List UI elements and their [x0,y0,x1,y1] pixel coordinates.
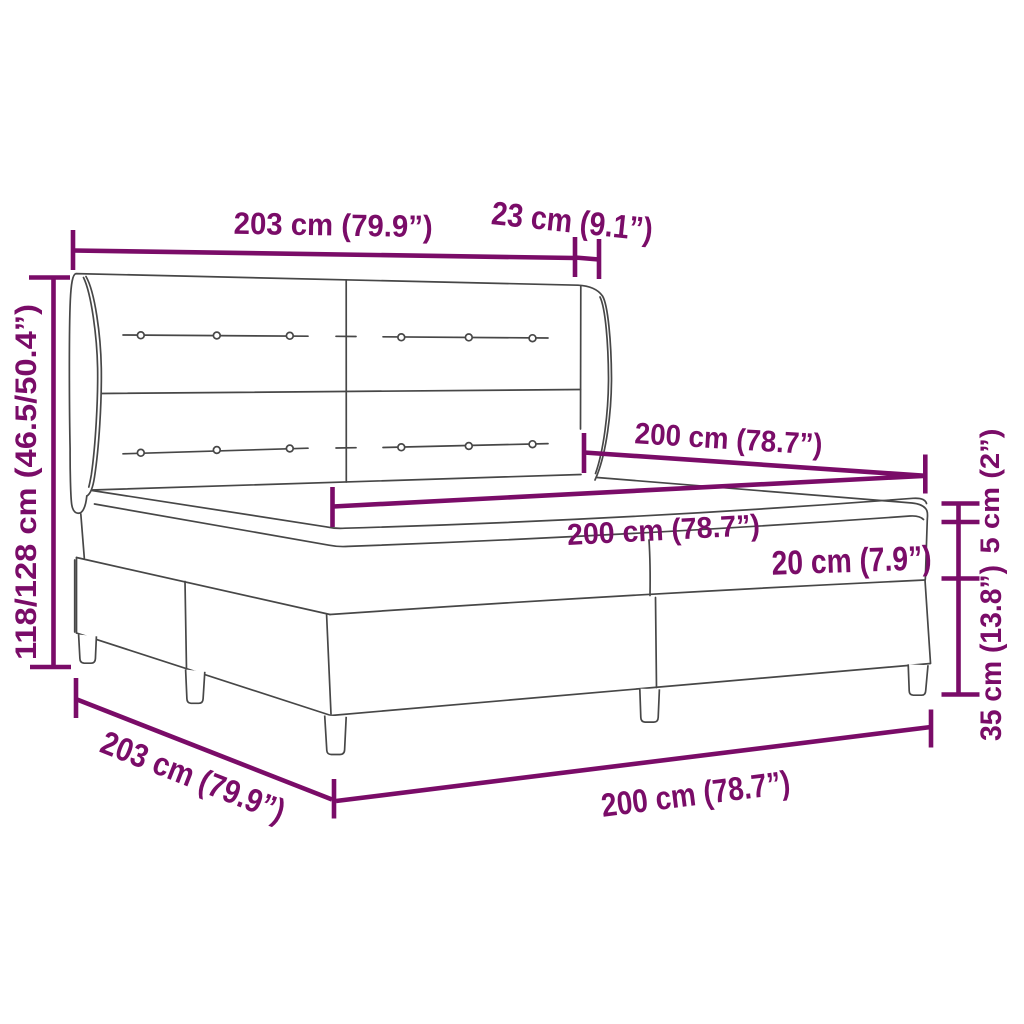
svg-text:200 cm (78.7”): 200 cm (78.7”) [634,417,824,461]
svg-text:35 cm (13.8”): 35 cm (13.8”) [975,565,1008,741]
svg-text:203 cm (79.9”): 203 cm (79.9”) [96,723,291,829]
svg-text:200 cm (78.7”): 200 cm (78.7”) [599,763,792,824]
svg-text:20 cm (7.9”): 20 cm (7.9”) [771,539,932,583]
svg-text:23 cm (9.1”): 23 cm (9.1”) [490,194,655,248]
svg-text:118/128 cm (46.5/50.4”): 118/128 cm (46.5/50.4”) [10,304,43,660]
svg-text:200 cm (78.7”): 200 cm (78.7”) [566,509,760,552]
svg-text:5 cm (2”): 5 cm (2”) [975,429,1005,554]
svg-text:203 cm (79.9”): 203 cm (79.9”) [233,206,433,244]
